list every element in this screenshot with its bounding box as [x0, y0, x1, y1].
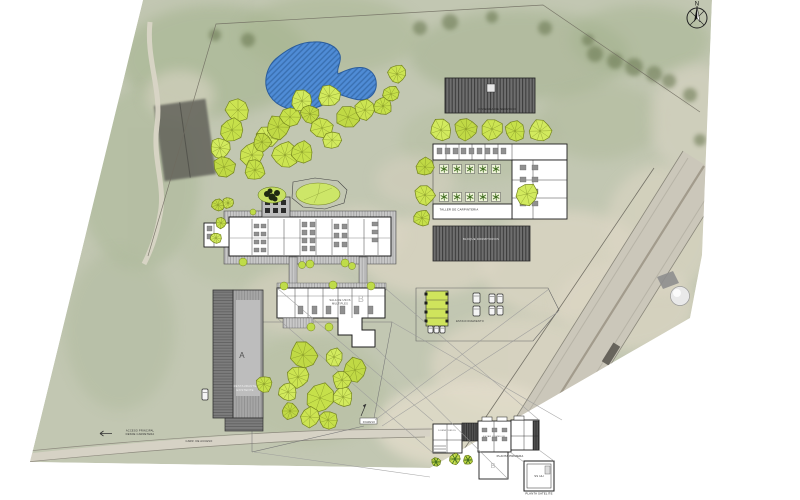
furniture-mark: [342, 242, 347, 247]
label-roof-b: BLOQUE DORMITORIOS: [463, 237, 499, 241]
planter: [453, 193, 462, 202]
bush: [299, 262, 306, 269]
detail-roof-vent: [514, 416, 524, 420]
detail-west-block: [433, 424, 462, 453]
label-rest-2: EXISTENTE: [236, 388, 253, 392]
furniture-mark: [532, 177, 538, 182]
furniture-mark: [461, 148, 466, 154]
vehicle-body: [473, 306, 480, 316]
aerial-tree-blob: [241, 33, 255, 47]
bush: [280, 282, 288, 290]
vehicle: [428, 326, 433, 333]
vehicle: [473, 306, 480, 316]
furniture-mark: [492, 428, 497, 432]
planter: [453, 165, 462, 174]
vehicle-body: [489, 306, 495, 315]
planter-tree-center: [482, 168, 484, 170]
detail-plan: [433, 416, 539, 479]
bush: [341, 259, 349, 267]
furniture-mark: [302, 222, 307, 227]
furniture-mark: [501, 148, 506, 154]
planter-tree-center: [456, 196, 458, 198]
building-a-south-ext: [225, 418, 263, 431]
planter-tree-center: [469, 196, 471, 198]
bush: [325, 323, 333, 331]
planter: [440, 193, 449, 202]
furniture-mark: [482, 428, 487, 432]
bush: [307, 323, 315, 331]
vehicle-body: [434, 326, 439, 333]
site-plan-sheet: NVIVIENDA DE SERVICIOTALLER DE CARPINTER…: [0, 0, 800, 500]
furniture-mark: [354, 306, 359, 314]
vehicle: [497, 294, 503, 303]
label-planta-primera: PLANTA PRIMERA: [497, 454, 524, 458]
label-roof-top: VIVIENDA DE SERVICIO: [478, 107, 516, 111]
planter: [466, 193, 475, 202]
vehicle-body: [202, 389, 208, 400]
projection-line: [539, 450, 554, 461]
furniture-mark: [261, 240, 266, 244]
vehicle-body: [440, 326, 445, 333]
planter-tree-center: [482, 196, 484, 198]
label-carr: CARR. DE ACCESO: [186, 439, 213, 443]
aerial-tree-blob: [486, 11, 498, 23]
aerial-tree-blob: [587, 46, 603, 62]
furniture-mark: [372, 238, 378, 242]
furniture-mark: [334, 224, 339, 229]
vehicle: [497, 306, 503, 315]
furniture-mark: [520, 165, 526, 170]
furniture-mark: [469, 148, 474, 154]
furniture-mark: [493, 148, 498, 154]
vehicle-body: [473, 293, 480, 303]
detail-east-hatch: [533, 421, 539, 450]
aerial-tree-blob: [209, 29, 221, 41]
label-detail-b: B: [491, 463, 496, 470]
aerial-tree-blob: [662, 74, 676, 88]
bush: [250, 209, 256, 215]
furniture-mark: [302, 230, 307, 235]
aerial-tree-blob: [694, 134, 706, 146]
furniture-mark: [372, 222, 378, 226]
service-building-skylight: [487, 84, 495, 92]
vehicle-body: [489, 294, 495, 303]
furniture-mark: [368, 306, 373, 314]
furniture-mark: [254, 240, 259, 244]
detail-roof-vent: [497, 417, 507, 421]
bush: [329, 281, 337, 289]
bush: [239, 258, 247, 266]
planter: [492, 193, 501, 202]
planter: [492, 165, 501, 174]
furniture-mark: [310, 238, 315, 243]
furniture-mark: [334, 233, 339, 238]
furniture-mark: [302, 246, 307, 251]
label-ingreso: INGRESO: [363, 421, 375, 424]
label-detail-note2: ESTAR COMEDOR: [483, 435, 505, 438]
planter-tree-center: [456, 168, 458, 170]
furniture-mark: [340, 306, 345, 314]
site-plan-drawing: NVIVIENDA DE SERVICIOTALLER DE CARPINTER…: [0, 0, 800, 500]
furniture-mark: [453, 148, 458, 154]
label-parking: ESTACIONAMIENTO: [456, 319, 484, 323]
aerial-tree-blob: [646, 66, 662, 82]
vehicle: [489, 306, 495, 315]
label-letter-b: B: [358, 294, 364, 304]
label-planta-satelite: PLANTA SATELITE: [525, 492, 552, 496]
furniture-mark: [261, 224, 266, 228]
tree: [256, 377, 272, 393]
aerial-tree-blob: [607, 53, 623, 69]
furniture-mark: [326, 306, 331, 314]
vehicle-body: [428, 326, 433, 333]
detail-hatched-block: [462, 423, 478, 441]
planter: [440, 165, 449, 174]
terrain-patch: [65, 250, 175, 410]
planter-tree-center: [469, 168, 471, 170]
bush: [349, 263, 356, 270]
furniture-mark: [502, 428, 507, 432]
planter: [479, 193, 488, 202]
planter-tree-center: [495, 196, 497, 198]
furniture-mark: [261, 248, 266, 252]
furniture-mark: [372, 230, 378, 234]
vehicle-body: [497, 306, 503, 315]
bush: [367, 282, 375, 290]
tree: [323, 132, 342, 148]
aerial-barn: [154, 99, 216, 181]
vehicle: [489, 294, 495, 303]
detail-roof-vent: [482, 417, 492, 421]
label-b-note-2: MULTIPLES: [332, 302, 348, 306]
planter: [479, 165, 488, 174]
furniture-mark: [520, 177, 526, 182]
label-acceso-2: DESDE CARRETERA: [126, 432, 155, 436]
vehicle: [434, 326, 439, 333]
vehicle: [473, 293, 480, 303]
label-sshh: SS HH: [534, 474, 544, 478]
planter-tree-center: [443, 168, 445, 170]
vehicle: [202, 389, 208, 400]
label-b-note-1: SALA DE USOS: [329, 298, 350, 302]
building-a-west-strip: [213, 290, 233, 418]
furniture-mark: [445, 148, 450, 154]
bush: [306, 260, 314, 268]
furniture-mark: [342, 233, 347, 238]
planter-tree-center: [443, 196, 445, 198]
workshop-south-wing: [433, 204, 512, 219]
furniture-mark: [477, 148, 482, 154]
furniture-mark: [254, 224, 259, 228]
building-a: [213, 290, 263, 431]
furniture-mark: [310, 246, 315, 251]
furniture-mark: [437, 148, 442, 154]
furniture-mark: [532, 165, 538, 170]
satellite-fixture: [545, 466, 550, 474]
furniture-mark: [254, 232, 259, 236]
label-detail-note1: DORMITORIOS: [438, 430, 456, 432]
furniture-mark: [310, 222, 315, 227]
furniture-mark: [302, 238, 307, 243]
planter-tree-center: [495, 168, 497, 170]
furniture-mark: [334, 242, 339, 247]
workshop-roof-block: [433, 226, 530, 261]
parking-module: [426, 291, 448, 326]
furniture-mark: [310, 230, 315, 235]
aerial-tree-blob: [683, 88, 697, 102]
aerial-tree-blob: [413, 21, 427, 35]
furniture-mark: [312, 306, 317, 314]
label-taller: TALLER DE CARPINTERIA: [440, 208, 479, 212]
furniture-mark: [254, 248, 259, 252]
furniture-mark: [342, 224, 347, 229]
aerial-tree-blob: [442, 14, 458, 30]
furniture-mark: [261, 232, 266, 236]
dome-highlight: [673, 289, 681, 297]
vehicle-body: [497, 294, 503, 303]
planter: [466, 165, 475, 174]
dome-tank: [671, 287, 690, 306]
furniture-mark: [207, 226, 212, 231]
furniture-mark: [485, 148, 490, 154]
label-acceso-1: ACCESO PRINCIPAL: [126, 429, 155, 433]
vehicle: [440, 326, 445, 333]
furniture-mark: [298, 306, 303, 314]
label-letter-a: A: [239, 351, 245, 360]
aerial-tree-blob: [538, 21, 552, 35]
